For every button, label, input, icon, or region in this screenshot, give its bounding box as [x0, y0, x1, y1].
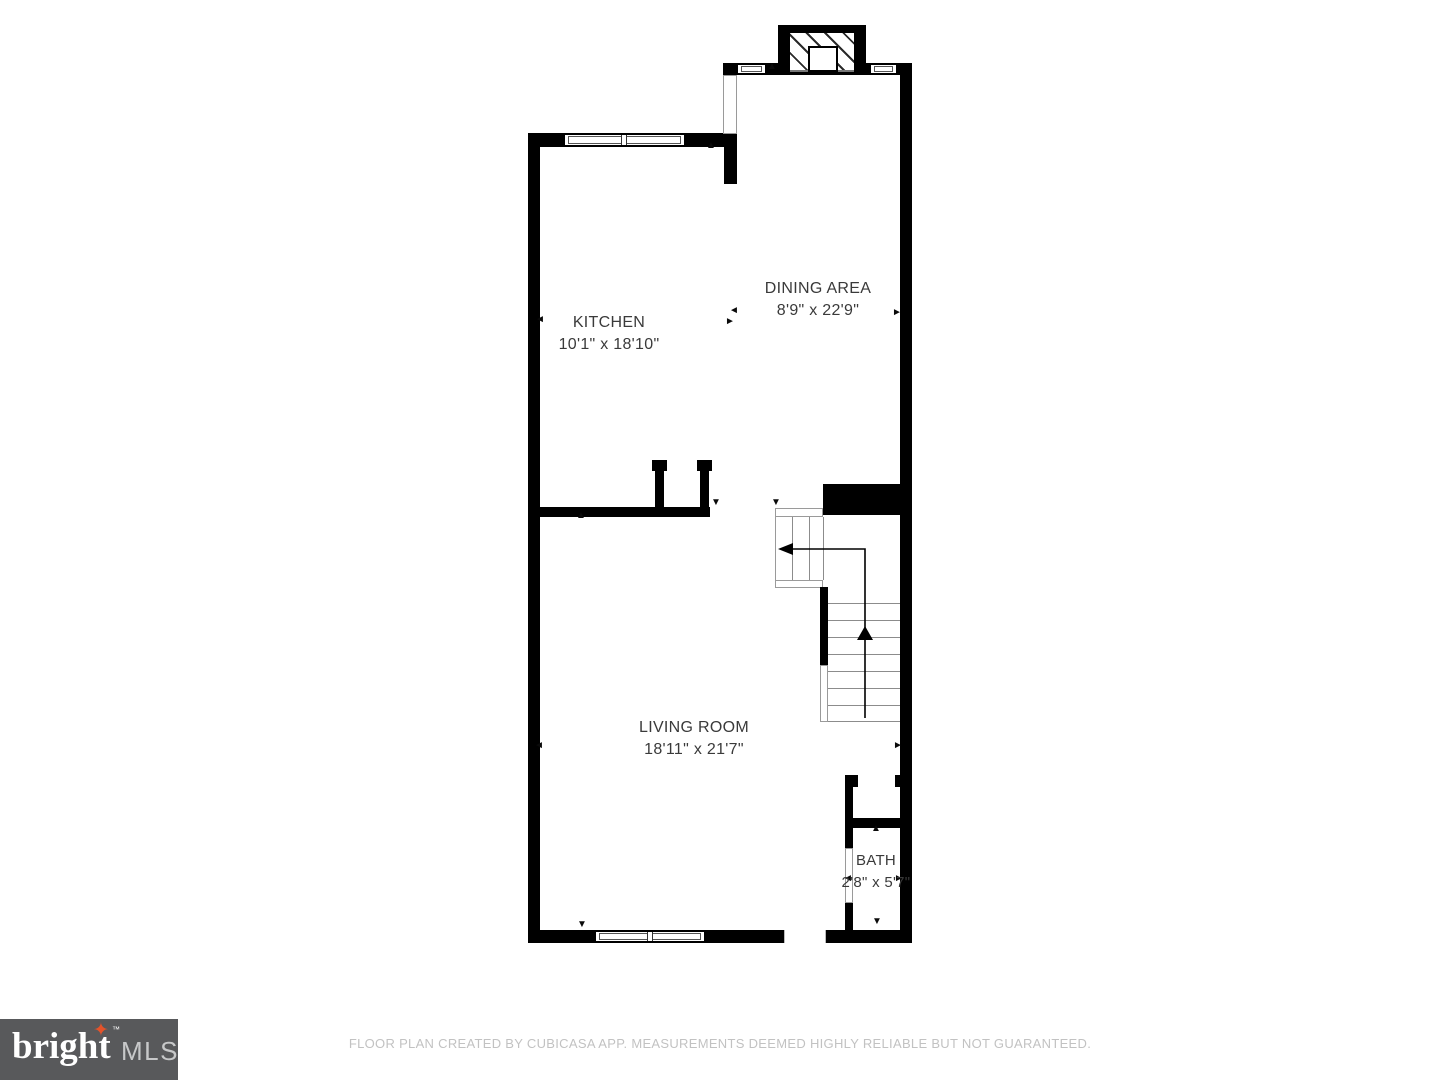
doorjamb-left-stem [655, 471, 664, 508]
room-dimensions: 8'9" x 22'9" [765, 300, 871, 322]
wall-bath-stub [845, 787, 853, 848]
measure-arrow-down-icon: ▼ [710, 498, 722, 510]
wall-dining-top-b [766, 63, 778, 75]
wall-bath-notch-right [895, 775, 902, 787]
room-label-kitchen: KITCHEN 10'1" x 18'10" [559, 312, 660, 356]
stair-top-strip [775, 508, 823, 517]
wall-left [528, 133, 540, 943]
stairs-upper-flight [775, 517, 823, 580]
room-dimensions: 10'1" x 18'10" [559, 334, 660, 356]
disclaimer-text: FLOOR PLAN CREATED BY CUBICASA APP. MEAS… [0, 1036, 1440, 1051]
room-name: LIVING ROOM [639, 717, 749, 739]
dining-window-right [869, 63, 898, 75]
window-pane [741, 66, 762, 72]
window-mullion [621, 135, 627, 145]
entry-door-opening [784, 930, 826, 943]
fireplace-firebox [808, 46, 838, 72]
logo-word-mls: MLS [121, 1036, 179, 1066]
stair-landing-edge [823, 517, 824, 580]
stairs-lower-flight [828, 587, 900, 722]
wall-bottom-a [528, 930, 596, 943]
open-wall-strip [723, 75, 737, 134]
doorjamb-right-stem [700, 471, 709, 508]
wall-mid-divider [528, 507, 710, 517]
trademark-symbol: ™ [112, 1025, 120, 1034]
doorjamb-left-cap [652, 460, 667, 471]
wall-stair-header [823, 484, 912, 515]
room-label-dining-area: DINING AREA 8'9" x 22'9" [765, 278, 871, 322]
measure-arrow-down-icon: ▼ [871, 917, 883, 929]
dining-window-left [736, 63, 767, 75]
room-name: BATH [842, 850, 911, 872]
stair-direction-arrow [0, 0, 1440, 1080]
wall-dining-top-d [897, 63, 912, 75]
room-label-bath: BATH 2'8" x 5'7" [842, 850, 911, 894]
wall-bath-stub-bottom [845, 903, 853, 933]
doorjamb-right-cap [697, 460, 712, 471]
room-dimensions: 18'11" x 21'7" [639, 739, 749, 761]
room-dimensions: 2'8" x 5'7" [842, 872, 911, 894]
measure-arrow-right-icon: ► [724, 317, 736, 329]
wall-bottom-b [704, 930, 784, 943]
bright-mls-logo: bright ✦ ™ MLS [0, 1019, 178, 1080]
wall-bottom-c [826, 930, 912, 943]
window-pane [874, 66, 893, 72]
stair-mid-strip [775, 580, 823, 588]
room-label-living-room: LIVING ROOM 18'11" x 21'7" [639, 717, 749, 761]
window-mullion [647, 932, 653, 941]
wall-kitchen-divider-stub [724, 133, 737, 184]
living-window [594, 930, 706, 943]
room-name: DINING AREA [765, 278, 871, 300]
wall-dining-top-a [723, 63, 737, 75]
kitchen-window [563, 133, 686, 147]
wall-kitchen-top-left [528, 133, 565, 147]
wall-bath-stub-cap [845, 775, 858, 787]
star-icon: ✦ [93, 1021, 109, 1040]
stair-under-opening [820, 665, 828, 722]
room-name: KITCHEN [559, 312, 660, 334]
floor-plan-page: ▲ ▲ ◄ ► ◄ ► ▼ ▲ ▼ ◄ ► ▲ ▼ ◄ ► ▼ KITCHEN … [0, 0, 1440, 1080]
wall-bath-top [853, 818, 902, 828]
measure-arrow-left-icon: ◄ [728, 306, 740, 318]
wall-stair-left [820, 587, 828, 665]
